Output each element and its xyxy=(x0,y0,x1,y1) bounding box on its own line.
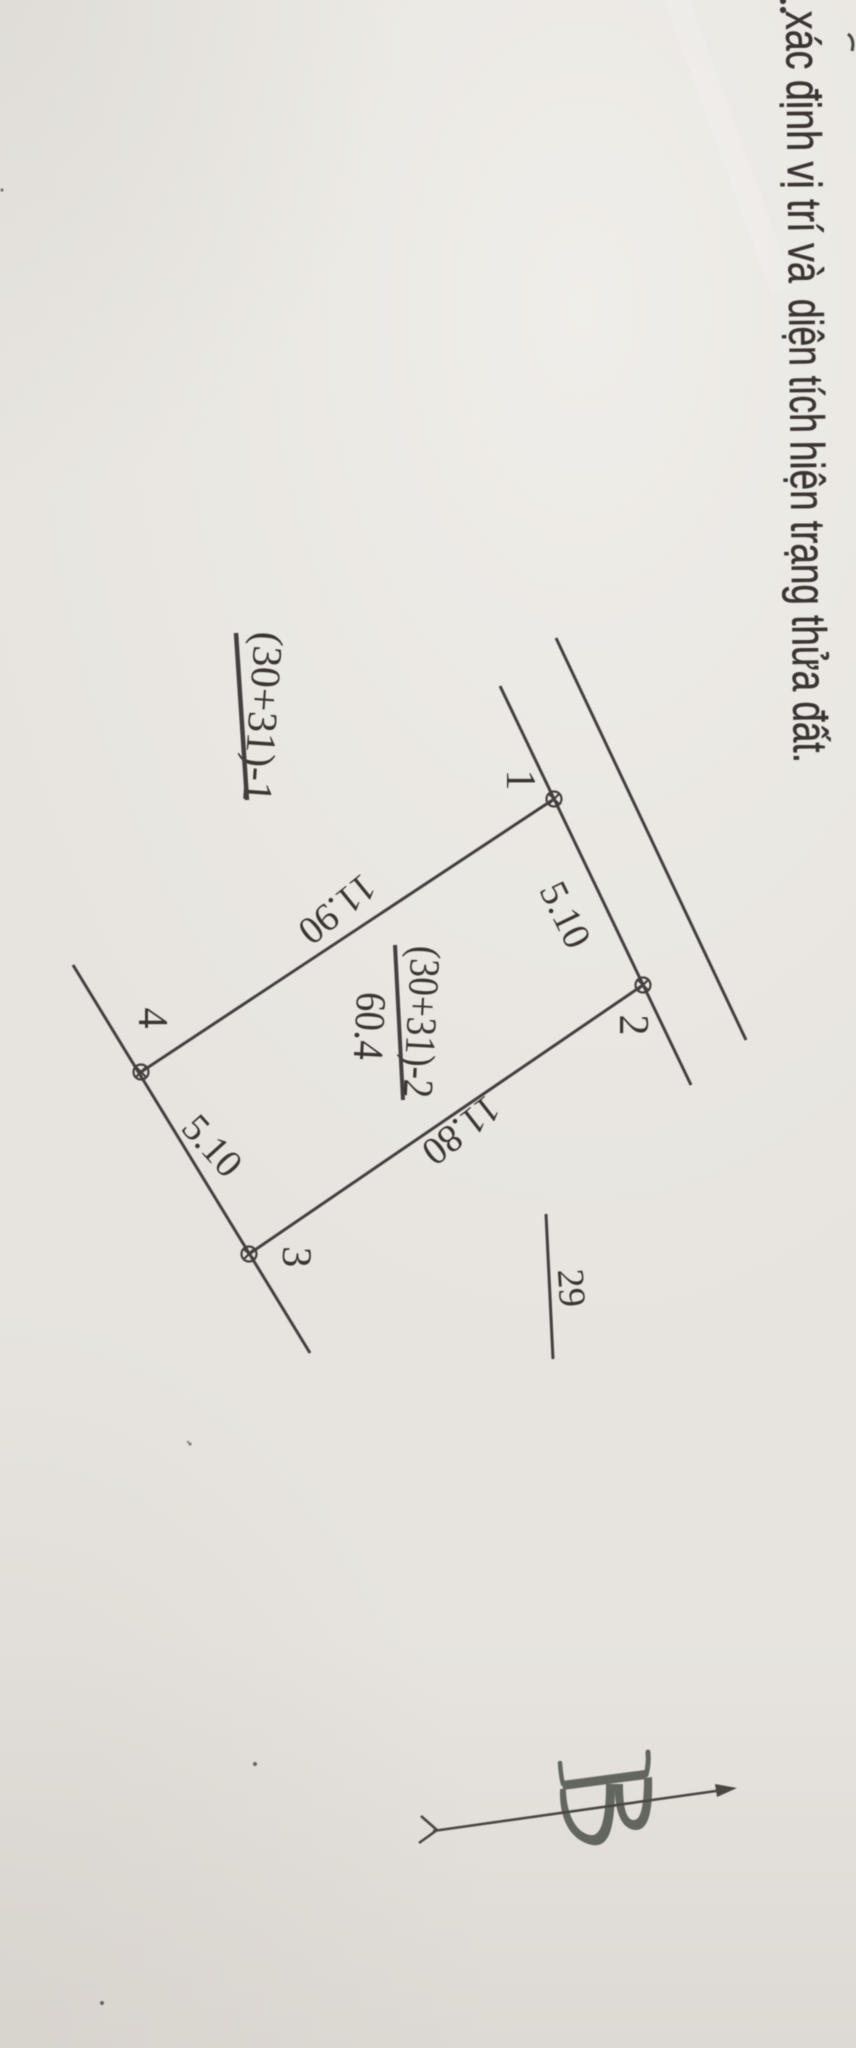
svg-text:60.4: 60.4 xyxy=(344,991,394,1061)
svg-text:4: 4 xyxy=(129,1008,175,1029)
svg-text:hiện trạng thửa đất.: hiện trạng thửa đất. xyxy=(780,441,836,764)
svg-text:3: 3 xyxy=(273,1246,320,1269)
svg-text:2: 2 xyxy=(610,1015,656,1036)
svg-text:xác định vị trí và: xác định vị trí và xyxy=(775,11,831,284)
svg-text:29: 29 xyxy=(549,1268,594,1309)
svg-text:diện tích: diện tích xyxy=(778,299,832,434)
svg-text:1: 1 xyxy=(497,770,543,791)
